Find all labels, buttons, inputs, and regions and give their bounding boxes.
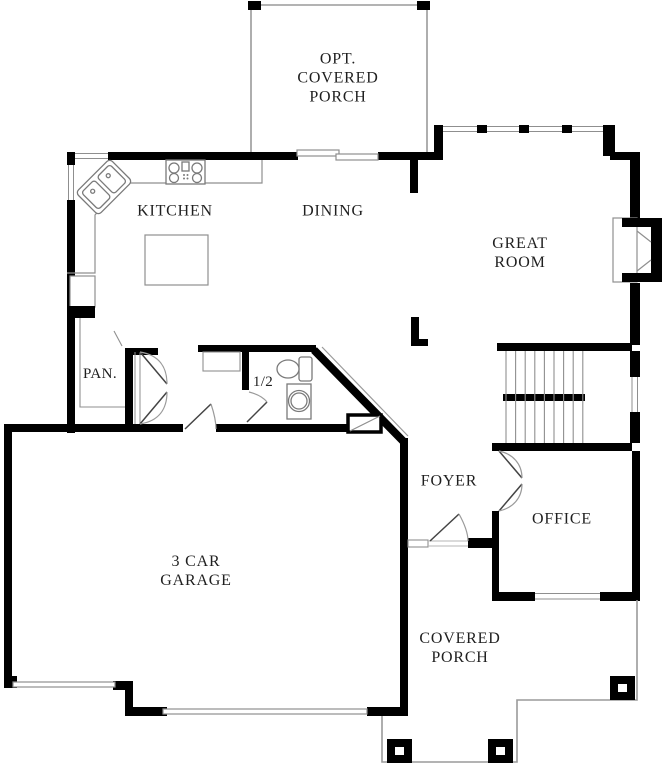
room-label-foyer: FOYER (421, 473, 477, 492)
floor-plan-drawing (0, 0, 662, 768)
window-icon (529, 125, 562, 133)
refrigerator-icon (67, 276, 95, 318)
room-label-garage: 3 CAR GARAGE (160, 553, 231, 591)
window-icon (572, 125, 603, 133)
window-icon (443, 125, 477, 133)
double-garage-door-icon (163, 709, 367, 714)
fireplace-icon (613, 218, 662, 282)
pantry-shelves (80, 318, 125, 407)
cooktop-icon (166, 160, 205, 184)
room-label-office: OFFICE (532, 511, 592, 530)
porch-post-icon (488, 739, 513, 763)
window-icon (75, 152, 108, 160)
room-label-half-bath: 1/2 (253, 374, 273, 392)
closet-double-doors-icon (135, 352, 167, 424)
chase-niche (348, 415, 381, 432)
room-label-dining: DINING (302, 203, 364, 222)
window-icon (535, 592, 600, 601)
porch-post-icon (387, 739, 412, 763)
foyer-sidelight (408, 540, 428, 547)
room-label-covered-porch: COVERED PORCH (419, 630, 500, 668)
toilet-icon (277, 357, 312, 381)
half-bath-door-icon (247, 392, 267, 422)
kitchen-island (145, 235, 208, 285)
room-label-opt-covered-porch: OPT. COVERED PORCH (297, 51, 378, 108)
room-label-kitchen: KITCHEN (137, 203, 213, 222)
corner-sink-icon (76, 159, 133, 216)
porch-post-icon (417, 1, 430, 10)
window-icon (487, 125, 519, 133)
window-icon (630, 377, 640, 412)
sliding-glass-door-icon (297, 150, 378, 160)
garage-entry-door-icon (185, 404, 216, 429)
single-garage-door-icon (13, 682, 115, 687)
room-label-great-room: GREAT ROOM (492, 235, 548, 273)
covered-porch-posts (387, 676, 635, 763)
room-label-pantry: PAN. (83, 366, 117, 384)
office-double-doors-icon (499, 451, 522, 511)
closet-shelf (203, 352, 240, 371)
garage-doors (13, 682, 367, 714)
front-door-icon (408, 514, 468, 547)
floor-plan: OPT. COVERED PORCH KITCHEN DINING GREAT … (0, 0, 662, 768)
covered-porch-outline (382, 600, 637, 762)
window-icon (67, 165, 75, 200)
pedestal-sink-icon (287, 384, 311, 419)
porch-post-icon (610, 676, 635, 700)
porch-post-icon (248, 1, 261, 10)
